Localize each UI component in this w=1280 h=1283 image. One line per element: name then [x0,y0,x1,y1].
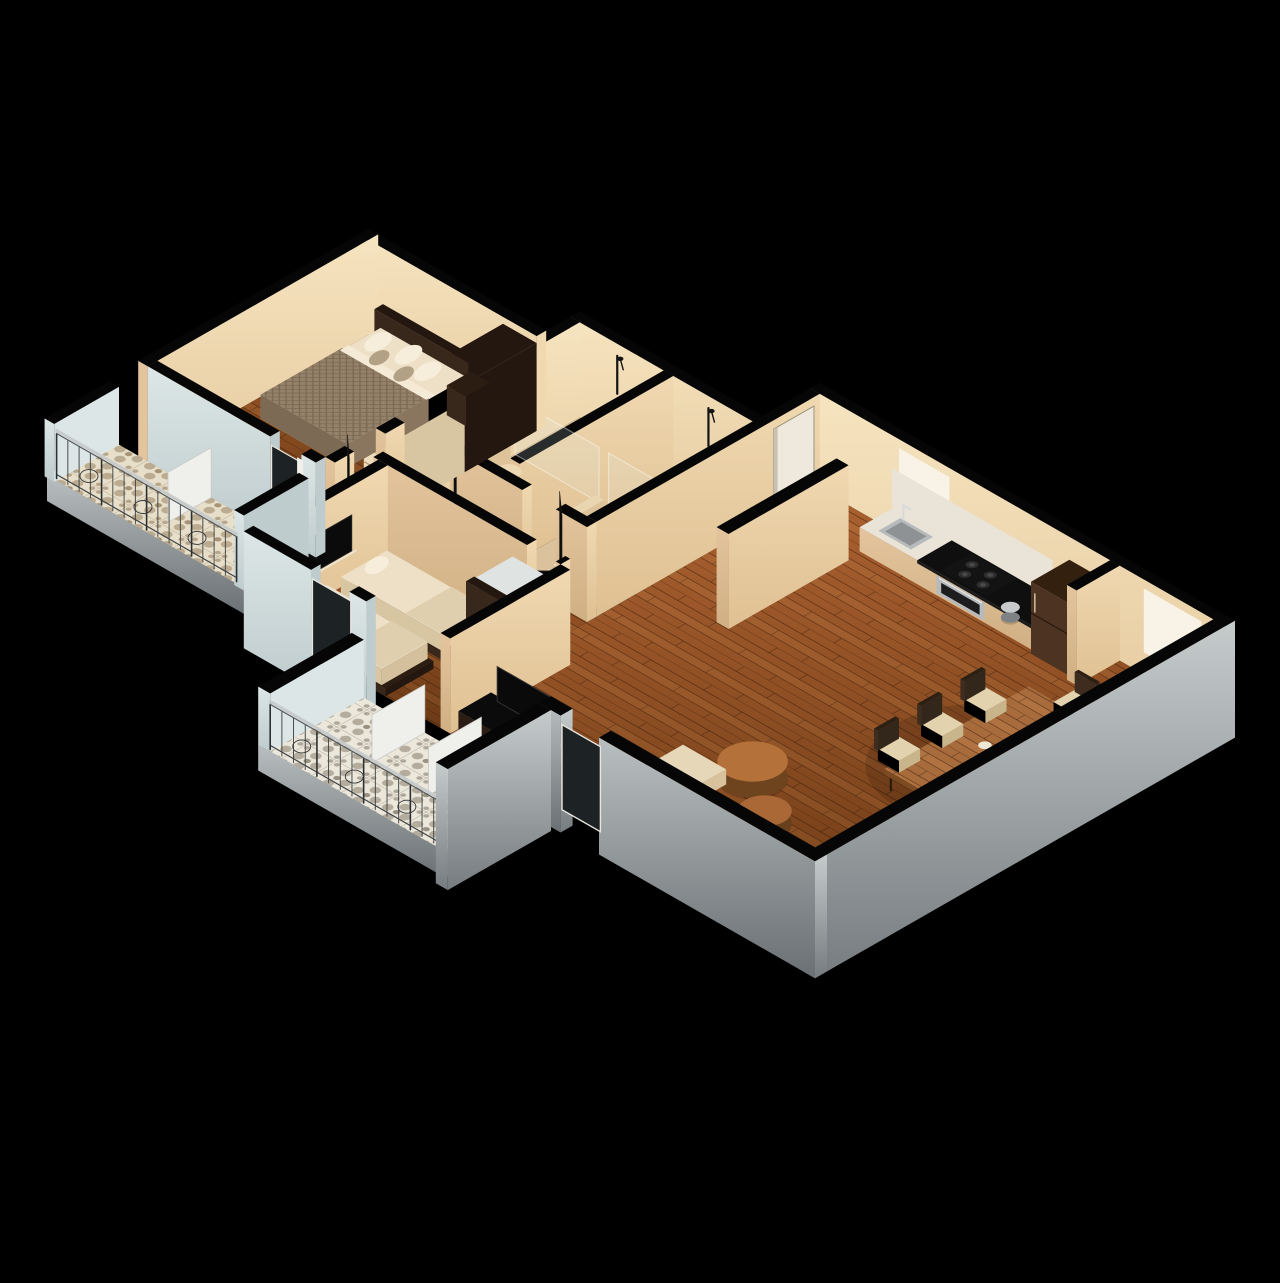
coffee-table-large [717,741,788,799]
scene-svg [0,0,1280,1283]
apartment-floorplan-3d-render [0,0,1280,1283]
